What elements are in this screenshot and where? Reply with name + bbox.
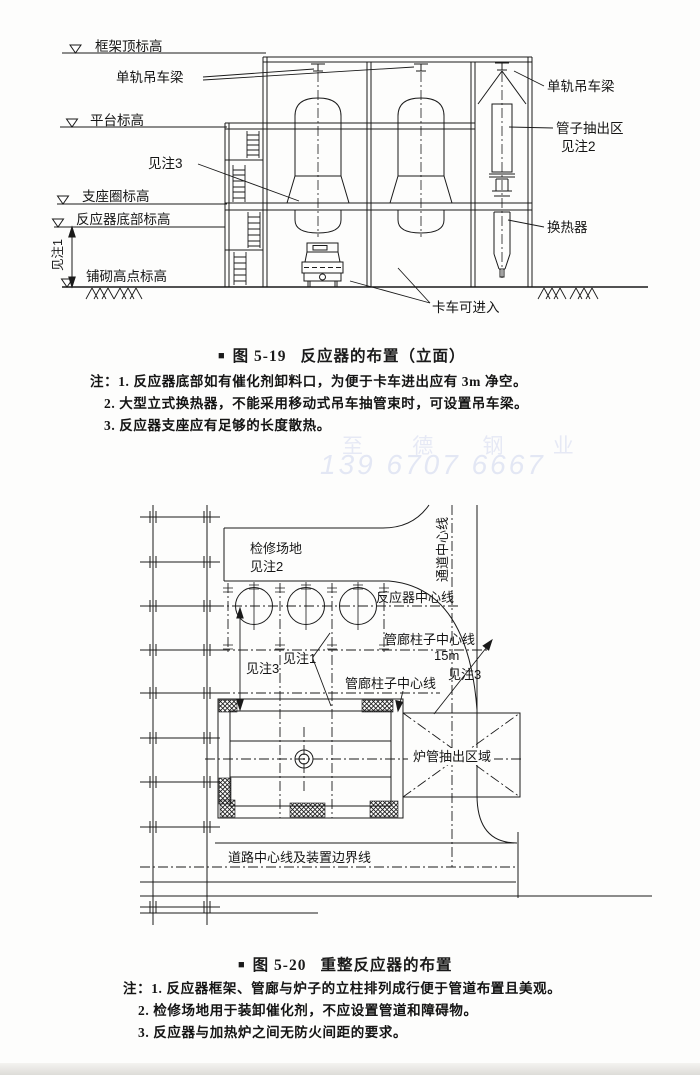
level-marker-icon — [58, 196, 69, 204]
fig2-note-1: 注：1. 反应器框架、管廊与炉子的立柱排列成行便于管道布置且美观。 — [123, 977, 561, 997]
reactor-circles — [142, 582, 458, 818]
scan-edge — [0, 1063, 700, 1075]
label-support-ring-elevation: 支座圈标高 — [82, 188, 150, 204]
fig1-note-1: 注：1. 反应器底部如有催化剂卸料口，为便于卡车进出应有 3m 净空。 — [90, 370, 527, 390]
fig2-note-3: 3. 反应器与加热炉之间无防火间距的要求。 — [138, 1021, 407, 1041]
label-see-note3-right: 见注3 — [448, 667, 481, 682]
label-frame-top-elevation: 框架顶标高 — [95, 38, 163, 54]
figure-5-20-plan-drawing: 检修场地 见注2 通道中心线 反应器中心线 管廊柱子中心线 15m 见注3 见注… — [0, 490, 700, 950]
label-see-note1: 见注1 — [283, 651, 316, 666]
figure-5-20-caption: ■图 5-20重整反应器的布置 — [238, 953, 452, 975]
monorail-beam-icon — [414, 64, 428, 71]
label-monorail-crane-beam-left: 单轨吊车梁 — [116, 69, 184, 85]
level-marker-icon — [70, 45, 81, 53]
label-see-note1-vertical: 见注1 — [50, 239, 65, 271]
label-monorail-crane-beam-right: 单轨吊车梁 — [547, 78, 615, 94]
label-maintenance-note: 见注2 — [250, 559, 283, 574]
exchanger-bay — [478, 63, 526, 278]
leader-lines — [198, 67, 553, 303]
caption-bullet-icon: ■ — [238, 959, 246, 971]
label-piperack-centerline-upper: 管廊柱子中心线 — [384, 632, 475, 647]
level-marker-icon — [53, 219, 64, 227]
maintenance-area — [224, 528, 389, 581]
fig1-note-3: 3. 反应器支座应有足够的长度散热。 — [104, 414, 331, 434]
label-reactor-centerline: 反应器中心线 — [376, 590, 454, 605]
label-tube-withdrawal-note: 见注2 — [561, 139, 596, 154]
label-paving-high-point-elevation: 铺砌高点标高 — [86, 268, 167, 284]
level-marker-icon — [67, 119, 78, 127]
label-truck-access: 卡车可进入 — [432, 299, 500, 315]
watermark-phone: 139 6707 6667 — [320, 449, 546, 481]
label-road-centerline: 道路中心线及装置边界线 — [228, 850, 371, 865]
caption-number: 图 5-20 — [253, 957, 307, 974]
label-maintenance-area: 检修场地 — [250, 541, 302, 556]
reactor-vessel-left — [287, 64, 349, 237]
reactor-vessel-right — [390, 64, 452, 237]
label-heat-exchanger: 换热器 — [547, 220, 588, 235]
caption-title: 重整反应器的布置 — [320, 957, 452, 974]
label-see-note3: 见注3 — [148, 156, 183, 171]
label-15m-dimension: 15m — [434, 648, 459, 663]
caption-bullet-icon: ■ — [218, 350, 226, 362]
label-tube-withdrawal-zone: 管子抽出区 — [556, 121, 624, 136]
label-platform-elevation: 平台标高 — [90, 112, 144, 128]
truck — [302, 243, 343, 287]
figure-5-19-elevation-drawing: 框架顶标高 单轨吊车梁 平台标高 见注3 支座圈标高 反应器底部标高 见注1 铺… — [0, 0, 700, 345]
label-reactor-bottom-elevation: 反应器底部标高 — [76, 211, 171, 227]
label-furnace-tube-zone: 炉管抽出区域 — [413, 749, 491, 764]
fig1-note-2: 2. 大型立式换热器，不能采用移动式吊车抽管束时，可设置吊车梁。 — [104, 392, 528, 412]
caption-title: 反应器的布置（立面） — [300, 348, 465, 365]
ladder — [233, 131, 260, 285]
fig2-note-2: 2. 检修场地用于装卸催化剂，不应设置管道和障碍物。 — [138, 999, 478, 1019]
label-piperack-centerline-lower: 管廊柱子中心线 — [345, 676, 436, 691]
figure-5-19-caption: ■图 5-19反应器的布置（立面） — [218, 344, 465, 366]
label-aisle-centerline-vertical: 通道中心线 — [435, 517, 450, 582]
caption-number: 图 5-19 — [233, 348, 287, 365]
document-page: 框架顶标高 单轨吊车梁 平台标高 见注3 支座圈标高 反应器底部标高 见注1 铺… — [0, 0, 700, 1075]
label-see-note3-left: 见注3 — [246, 661, 279, 676]
monorail-beam-icon — [311, 64, 325, 71]
monorail-beam-icon — [495, 63, 509, 70]
ground-hatch — [86, 288, 598, 299]
steel-frame — [225, 57, 532, 287]
